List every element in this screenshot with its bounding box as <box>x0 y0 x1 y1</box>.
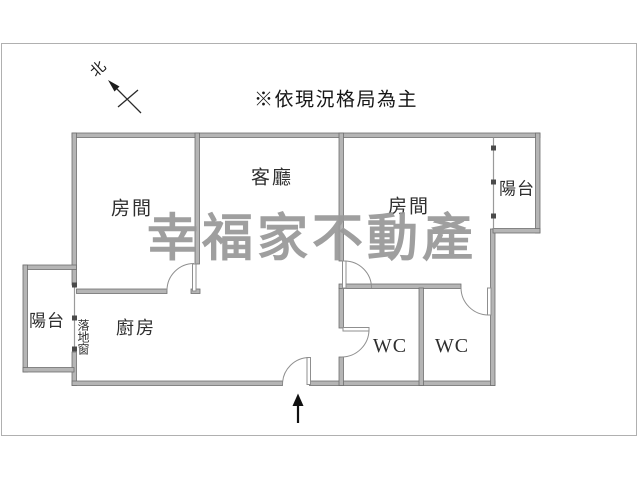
door-leaf-wc-left <box>343 328 369 332</box>
wall-balcony-right-bottom <box>493 229 540 234</box>
compass-line <box>116 88 141 113</box>
door-leaf-entrance <box>307 358 311 385</box>
room-label-wc-right: WC <box>435 336 469 356</box>
door-arc-wc-left <box>342 330 370 358</box>
label-floor-window: 落地窗 <box>77 319 89 355</box>
wall-wc-top <box>339 284 461 289</box>
room-label-balcony-right: 陽台 <box>499 181 535 198</box>
room-label-kitchen: 廚房 <box>116 319 156 337</box>
entrance-arrow-icon <box>293 394 304 424</box>
room-label-living-room: 客廳 <box>251 169 293 188</box>
wall-balcony-left-outer <box>23 265 28 372</box>
north-compass <box>108 80 141 113</box>
wall-wc-left-upper <box>339 288 344 328</box>
door-leaf-wc-right <box>488 288 492 315</box>
watermark-text: 幸福家不動產 <box>147 213 477 264</box>
door-arc-wc-right <box>461 288 489 316</box>
door-arcs <box>167 261 489 385</box>
floorplan-image: ※依現況格局為主 北 客廳 房間 房間 陽台 陽台 廚房 WC WC 落地窗 幸… <box>0 0 640 480</box>
wall-balcony-right-outer <box>536 133 541 233</box>
wall-balcony-left-top <box>23 265 77 270</box>
room-label-balcony-left: 陽台 <box>29 313 65 330</box>
door-leaf-bedroom-left <box>193 264 197 291</box>
wall-bottom-left <box>72 381 283 386</box>
wall-top <box>72 133 540 138</box>
wall-bedroom-left-bottom <box>77 289 168 294</box>
door-arc-bedroom-left <box>167 264 194 291</box>
room-label-wc-left: WC <box>373 336 407 356</box>
door-arc-entrance <box>283 358 310 385</box>
wall-balcony-left-bottom <box>23 368 74 373</box>
wall-wc-left-lower <box>339 357 344 386</box>
disclaimer-text: ※依現況格局為主 <box>254 91 418 110</box>
wall-left-upper <box>72 133 77 285</box>
wall-wc-divider <box>419 288 424 386</box>
wall-bottom-right <box>310 381 496 386</box>
